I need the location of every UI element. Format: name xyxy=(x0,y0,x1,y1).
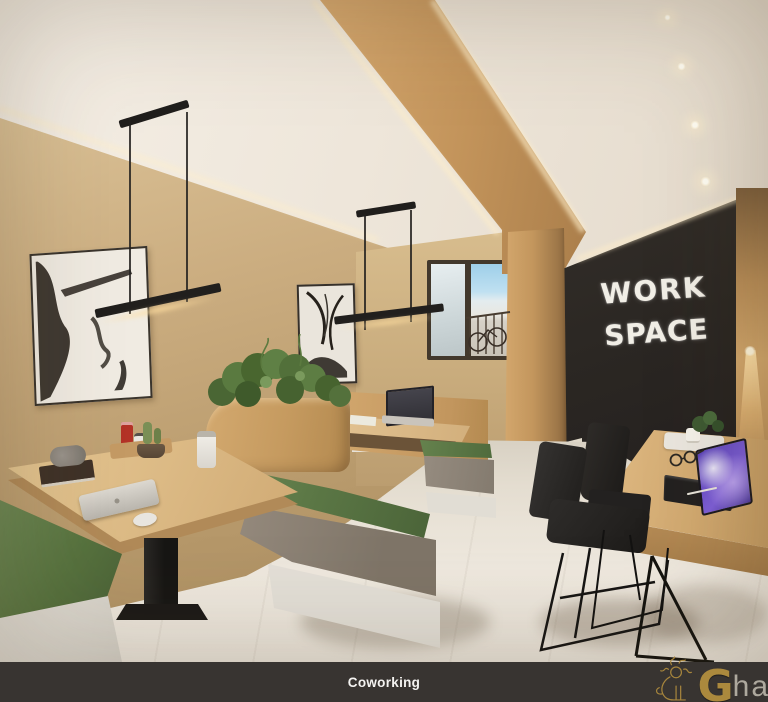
tablet xyxy=(695,438,753,516)
brand-initial: G xyxy=(698,668,734,702)
caption-label: Coworking xyxy=(348,675,420,690)
artwork-palm-strokes xyxy=(299,285,355,382)
tumbler xyxy=(197,431,216,468)
coffee-cup xyxy=(686,428,700,443)
wall-lamp xyxy=(744,346,756,356)
cactus-1 xyxy=(143,422,152,444)
recessed-spotlight-2 xyxy=(677,62,686,71)
pendant-1-cable-b xyxy=(186,112,188,302)
brand-name-rest: har xyxy=(733,672,768,702)
recessed-spotlight-1 xyxy=(664,14,671,21)
brand-watermark: G har xyxy=(650,655,768,702)
cactus-2 xyxy=(154,428,161,444)
coworking-render: WORK SPACE xyxy=(0,0,768,702)
recessed-spotlight-3 xyxy=(690,120,700,130)
lion-icon xyxy=(650,655,696,702)
pendant-2-cable-b xyxy=(410,210,412,322)
cactus-pot xyxy=(137,444,165,458)
shadow-under-desk xyxy=(640,585,768,643)
abstract-artwork-large xyxy=(29,246,152,406)
pendant-1-cable-a xyxy=(129,118,131,314)
abstract-artwork-small xyxy=(297,283,358,384)
caption-bar: Coworking G har xyxy=(0,662,768,702)
artwork-ink-strokes xyxy=(32,248,151,404)
window-pane-right xyxy=(471,264,509,356)
table-pedestal xyxy=(144,538,178,610)
chalkboard-text: WORK SPACE xyxy=(587,266,723,359)
interior-scene: WORK SPACE xyxy=(0,0,768,662)
recessed-spotlight-4 xyxy=(700,176,711,187)
chalk-line-2: SPACE xyxy=(590,307,723,358)
table-pedestal-base xyxy=(116,604,208,620)
